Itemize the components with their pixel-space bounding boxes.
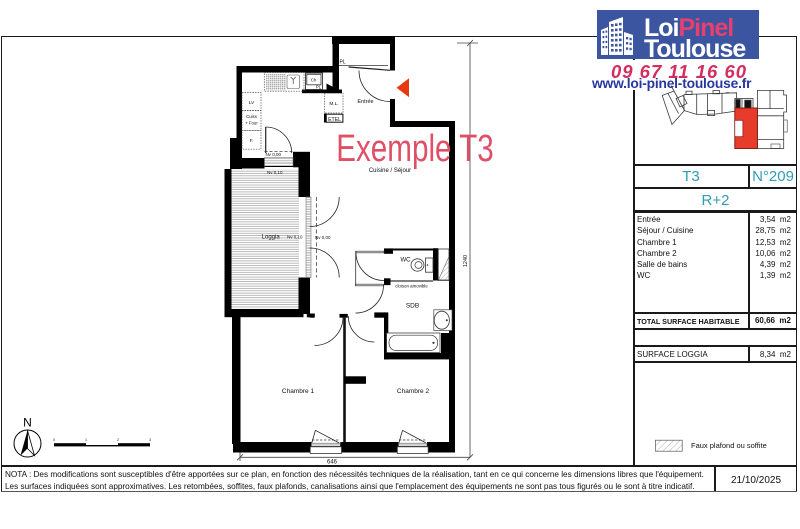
svg-text:Loggia: Loggia <box>262 234 281 240</box>
svg-text:WC: WC <box>401 258 412 264</box>
svg-text:Nv 0,10: Nv 0,10 <box>267 170 283 175</box>
svg-text:+ Four: + Four <box>245 121 258 126</box>
svg-text:646: 646 <box>327 460 338 466</box>
svg-text:Nv 0,00: Nv 0,00 <box>315 235 331 240</box>
svg-text:1240: 1240 <box>463 255 469 267</box>
svg-text:Exemple T3: Exemple T3 <box>336 128 494 170</box>
svg-text:Chambre 1: Chambre 1 <box>282 388 315 395</box>
svg-text:ETEL: ETEL <box>328 117 341 123</box>
svg-text:Cuisine / Séjour: Cuisine / Séjour <box>369 168 411 174</box>
svg-text:cloison amovible: cloison amovible <box>395 284 428 289</box>
svg-text:0: 0 <box>53 437 56 442</box>
svg-text:Entrée: Entrée <box>357 99 373 105</box>
svg-text:F.: F. <box>250 138 254 144</box>
svg-text:M.L.: M.L. <box>329 101 338 107</box>
svg-text:PL: PL <box>316 85 322 90</box>
svg-text:Cuiss: Cuiss <box>246 114 257 119</box>
svg-text:N: N <box>23 416 32 430</box>
svg-text:PL: PL <box>340 60 346 66</box>
svg-text:2: 2 <box>117 437 120 442</box>
svg-text:SDB: SDB <box>406 302 419 309</box>
svg-text:Chambre 2: Chambre 2 <box>397 388 430 395</box>
svg-text:Ch: Ch <box>311 78 317 83</box>
svg-text:3: 3 <box>149 437 152 442</box>
svg-text:LV: LV <box>249 100 255 106</box>
svg-text:Nv 0,00: Nv 0,00 <box>265 152 281 157</box>
svg-text:Nv 0,10: Nv 0,10 <box>287 234 303 239</box>
svg-text:1: 1 <box>85 437 88 442</box>
